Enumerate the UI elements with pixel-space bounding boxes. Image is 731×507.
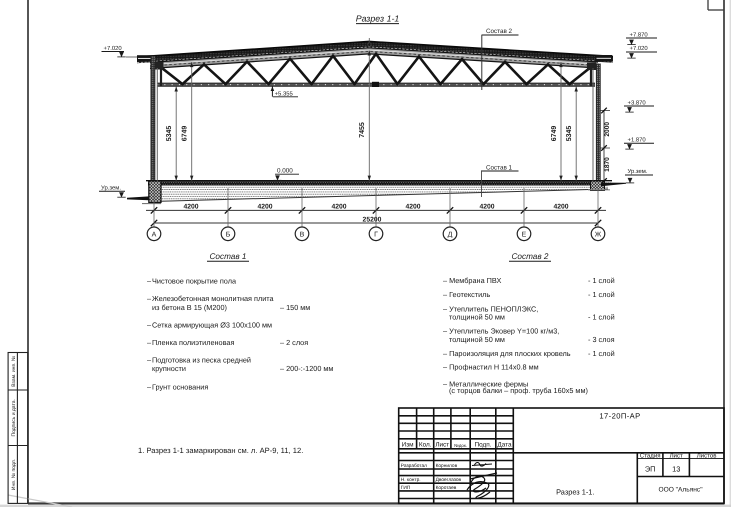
svg-text:1870: 1870	[604, 157, 611, 172]
svg-text:крупности: крупности	[152, 364, 186, 373]
svg-text:Д: Д	[448, 232, 453, 239]
svg-text:17-20П-АР: 17-20П-АР	[599, 412, 640, 421]
svg-text:Подпись и дата.: Подпись и дата.	[11, 399, 17, 436]
svg-text:Г: Г	[374, 232, 378, 239]
svg-text:Ур.зем.: Ур.зем.	[101, 184, 121, 191]
svg-text:Ур.зем.: Ур.зем.	[628, 168, 648, 175]
svg-text:+7.870: +7.870	[630, 31, 649, 38]
svg-text:5345: 5345	[566, 126, 573, 142]
svg-text:Грунт основания: Грунт основания	[152, 383, 208, 392]
svg-text:- 1 слой: - 1 слой	[588, 276, 615, 285]
svg-text:ООО "Альянс": ООО "Альянс"	[658, 486, 703, 493]
svg-text:– Геотекстиль: – Геотекстиль	[443, 290, 490, 299]
svg-text:(с торцов балки – проф. труба: (с торцов балки – проф. труба 160х5 мм)	[449, 386, 588, 395]
svg-text:Железобетонная монолитная пли: Железобетонная монолитная плита	[152, 294, 275, 303]
svg-text:Лист: Лист	[435, 442, 449, 449]
svg-text:0.000: 0.000	[277, 168, 293, 175]
svg-text:Лист: Лист	[670, 452, 683, 459]
svg-text:Изм: Изм	[402, 442, 414, 449]
svg-text:Инв. № подл.: Инв. № подл.	[11, 459, 17, 490]
svg-text:– Пароизоляция для плоских кро: – Пароизоляция для плоских кровель	[443, 349, 571, 358]
svg-text:+7.020: +7.020	[104, 45, 123, 52]
svg-text:А: А	[152, 232, 157, 239]
svg-text:– 2 слоя: – 2 слоя	[280, 338, 308, 347]
svg-text:6749: 6749	[551, 126, 558, 142]
svg-text:толщиной 50 мм: толщиной 50 мм	[449, 335, 505, 344]
svg-text:Кол.: Кол.	[419, 442, 432, 449]
svg-text:5345: 5345	[166, 126, 173, 142]
svg-text:ГИП: ГИП	[401, 485, 411, 491]
svg-text:Н. контр.: Н. контр.	[401, 477, 421, 483]
svg-text:1. Разрез 1-1 замаркирован см.: 1. Разрез 1-1 замаркирован см. л. АР-9, …	[138, 446, 303, 455]
svg-text:25200: 25200	[363, 216, 382, 223]
svg-text:4200: 4200	[479, 204, 494, 211]
svg-text:+3.870: +3.870	[628, 99, 647, 106]
svg-text:Ж: Ж	[595, 232, 602, 239]
svg-text:4200: 4200	[257, 204, 272, 211]
svg-text:Корнилов: Корнилов	[436, 463, 458, 469]
svg-text:Листов: Листов	[697, 452, 717, 459]
svg-text:2000: 2000	[604, 122, 611, 137]
svg-text:7455: 7455	[359, 122, 366, 138]
svg-text:Разработал: Разработал	[401, 463, 427, 469]
svg-text:– Мембрана ПВХ: – Мембрана ПВХ	[443, 276, 501, 285]
svg-text:4200: 4200	[553, 204, 568, 211]
svg-text:Б: Б	[226, 232, 231, 239]
svg-text:Разрез 1-1.: Разрез 1-1.	[556, 488, 594, 497]
svg-text:Е: Е	[522, 232, 527, 239]
svg-text:ЭП: ЭП	[645, 465, 656, 474]
svg-text:4200: 4200	[183, 204, 198, 211]
svg-text:толщиной 50 мм: толщиной 50 мм	[449, 313, 505, 322]
svg-text:– Профнастил Н 114х0.8 мм: – Профнастил Н 114х0.8 мм	[443, 363, 539, 372]
svg-text:– 200-:-1200 мм: – 200-:-1200 мм	[280, 364, 333, 373]
svg-text:Подп.: Подп.	[475, 442, 492, 449]
svg-text:- 3 слоя: - 3 слоя	[588, 335, 615, 344]
svg-text:– 150 мм: – 150 мм	[280, 303, 310, 312]
svg-text:13: 13	[672, 465, 680, 474]
svg-text:В: В	[300, 232, 305, 239]
svg-text:Коротаев: Коротаев	[436, 485, 457, 491]
svg-text:Взам. инв. №: Взам. инв. №	[11, 355, 17, 387]
svg-text:4200: 4200	[405, 204, 420, 211]
svg-text:№док.: №док.	[454, 443, 467, 448]
svg-text:Дата: Дата	[497, 442, 512, 449]
svg-text:- 1 слой: - 1 слой	[588, 313, 615, 322]
svg-text:Состав 2: Состав 2	[512, 252, 549, 261]
svg-text:Двоеглазов: Двоеглазов	[436, 477, 462, 483]
svg-text:4200: 4200	[331, 204, 346, 211]
svg-text:Стадия: Стадия	[640, 452, 661, 459]
svg-text:- 1 слой: - 1 слой	[588, 349, 615, 358]
svg-text:- 1 слой: - 1 слой	[588, 290, 615, 299]
svg-text:Разрез 1-1: Разрез 1-1	[356, 13, 400, 23]
svg-text:Состав 2: Состав 2	[486, 28, 513, 35]
svg-text:+1.870: +1.870	[628, 137, 647, 144]
svg-text:Чистовое покрытие пола: Чистовое покрытие пола	[152, 277, 237, 286]
svg-text:из бетона В 15 (М200): из бетона В 15 (М200)	[152, 303, 227, 312]
svg-text:Состав 1: Состав 1	[486, 164, 513, 171]
svg-text:+7.020: +7.020	[630, 45, 649, 52]
svg-text:6749: 6749	[181, 126, 188, 142]
svg-text:Состав 1: Состав 1	[210, 252, 247, 261]
svg-text:Сетка армирующая Ø3 100х100 мм: Сетка армирующая Ø3 100х100 мм	[152, 320, 272, 329]
svg-text:Пленка полиэтиленовая: Пленка полиэтиленовая	[152, 338, 234, 347]
